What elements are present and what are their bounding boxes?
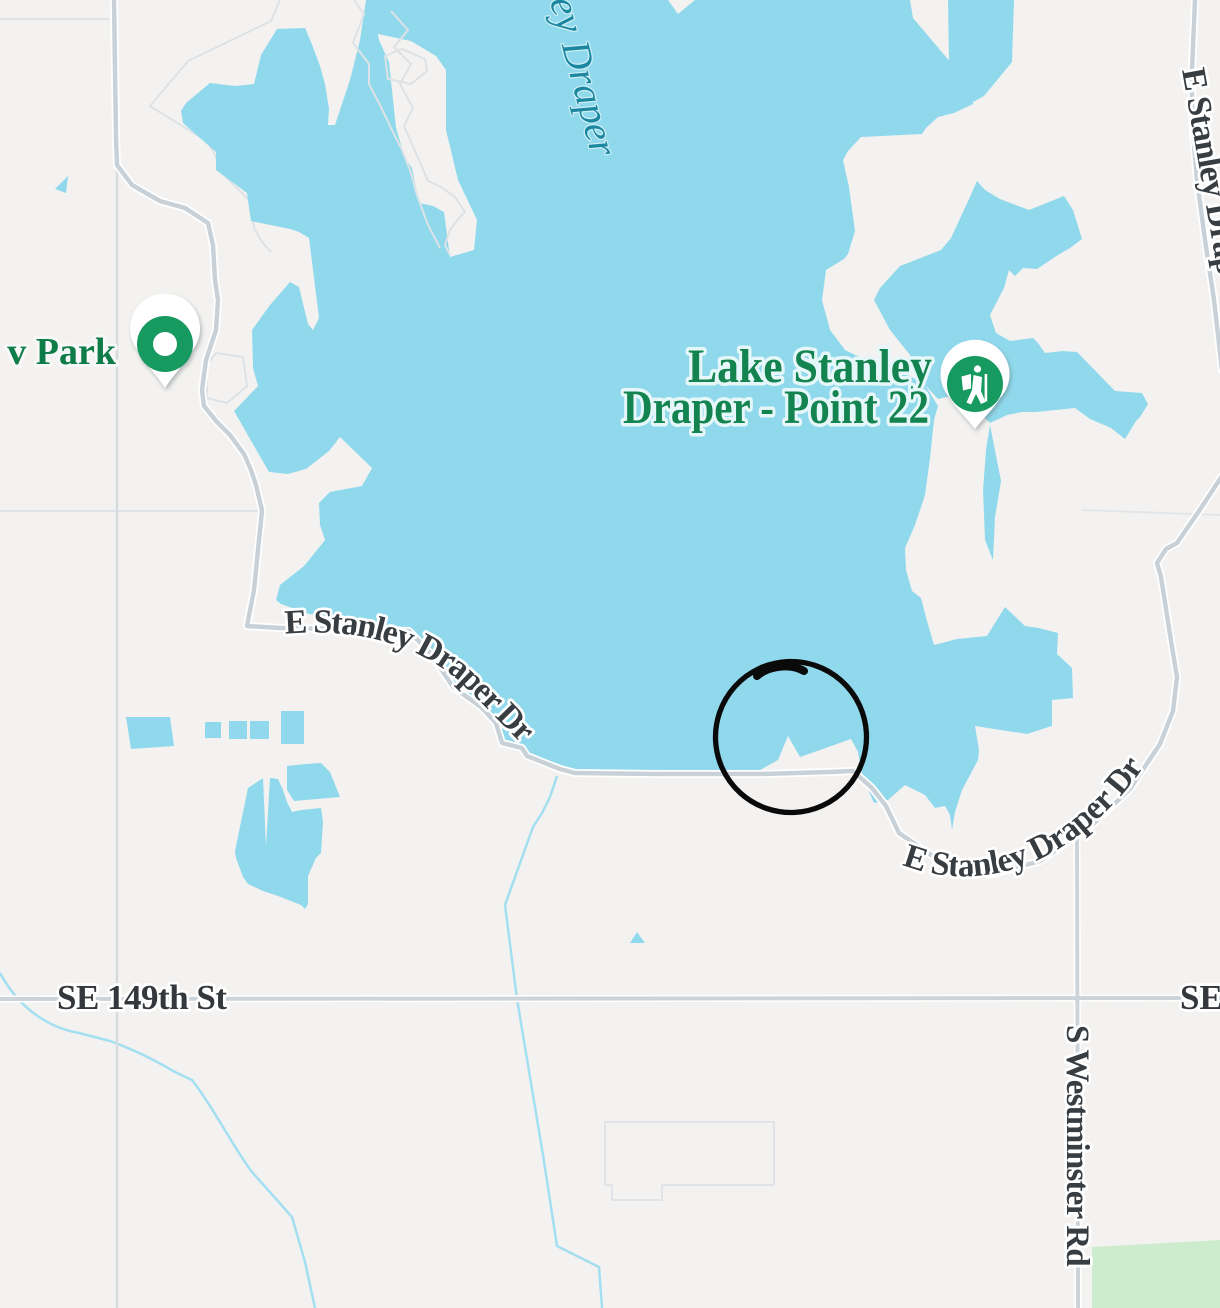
svg-text:v Park: v Park [7, 331, 117, 373]
svg-text:S Westminster Rd: S Westminster Rd [1059, 1025, 1095, 1266]
svg-text:Draper - Point 22: Draper - Point 22 [623, 381, 929, 434]
svg-text:SE 149th St: SE 149th St [57, 978, 227, 1017]
svg-text:SE 1: SE 1 [1180, 978, 1220, 1017]
